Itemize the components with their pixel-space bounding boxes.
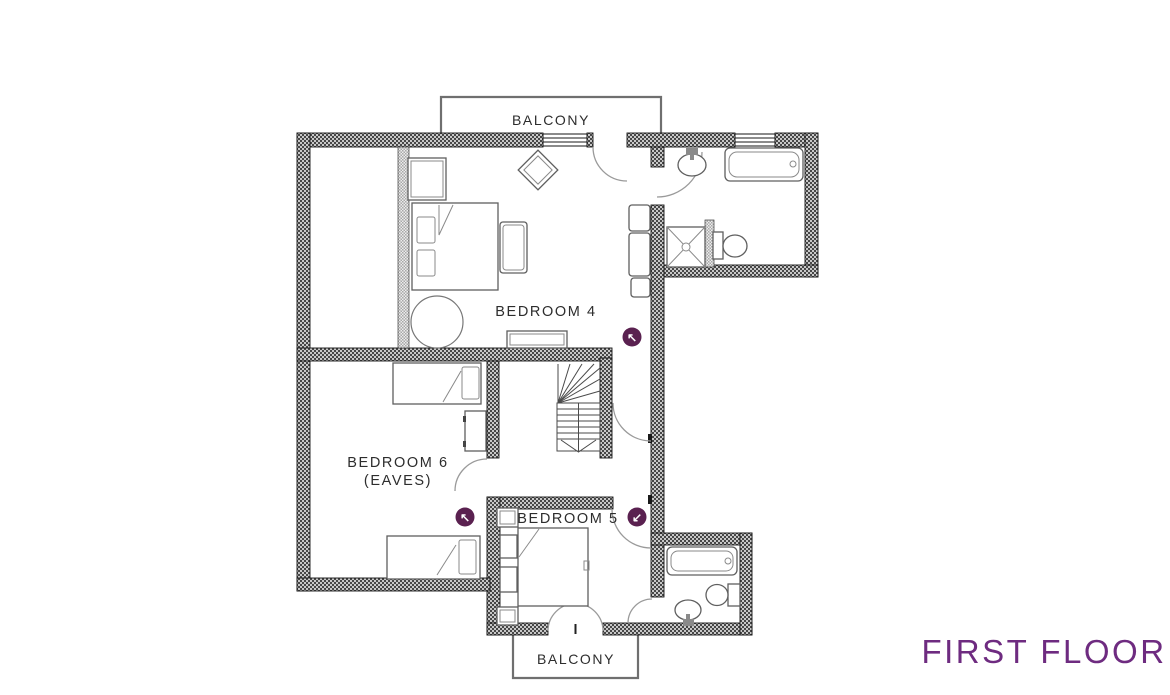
bedroom6-eaves-label: (EAVES) [364,473,432,489]
toilet-icon [713,232,747,259]
nav-marker-corridor[interactable]: ↙ [628,508,647,527]
sink-icon [675,600,701,626]
window-bathroom-top [735,134,775,146]
balcony-bottom-label: BALCONY [537,651,615,667]
wardrobe-icon [408,158,446,200]
bedroom4-label: BEDROOM 4 [495,304,596,320]
bedside-table-icon [497,607,518,625]
arrow-upleft-icon: ↖ [460,511,470,525]
bedroom6-label: BEDROOM 6 [347,455,448,471]
low-cabinet-icon [507,331,567,348]
bathroom-bottom-fixtures [667,547,740,626]
arrow-upleft-icon: ↖ [627,331,637,345]
bed-end-bench-icon [500,222,527,273]
single-bed-bottom-icon [387,536,480,579]
floorplan-page: BALCONY BEDROOM 4 BEDROOM 6 (EAVES) BEDR… [0,0,1170,695]
bedroom5-label: BEDROOM 5 [517,511,618,527]
bathtub-icon [667,547,737,575]
arrow-downleft-icon: ↙ [632,511,642,525]
bedroom6-furniture [387,363,486,579]
single-bed-top-icon [393,363,481,404]
side-table-icon [500,535,517,558]
bathtub-icon [725,148,803,181]
round-rug-icon [411,296,463,348]
window-bedroom4 [543,134,587,146]
bathroom-top-fixtures [667,148,803,267]
wardrobe-icon [497,508,518,527]
double-bed-icon [518,528,589,606]
page-title: FIRST FLOOR [921,633,1166,670]
double-bed-icon [412,203,498,290]
staircase [557,364,600,452]
bedside-cabinet-icon [463,411,486,451]
shower-icon [667,227,705,267]
nav-marker-passage[interactable]: ↖ [623,328,642,347]
cupboards-icon [629,205,650,297]
side-table-icon [500,567,517,592]
nav-marker-bedroom6[interactable]: ↖ [456,508,475,527]
floorplan-svg: BALCONY BEDROOM 4 BEDROOM 6 (EAVES) BEDR… [0,0,1170,695]
corner-chair-icon [518,150,558,190]
balcony-top-label: BALCONY [512,112,590,128]
toilet-icon [706,584,740,606]
